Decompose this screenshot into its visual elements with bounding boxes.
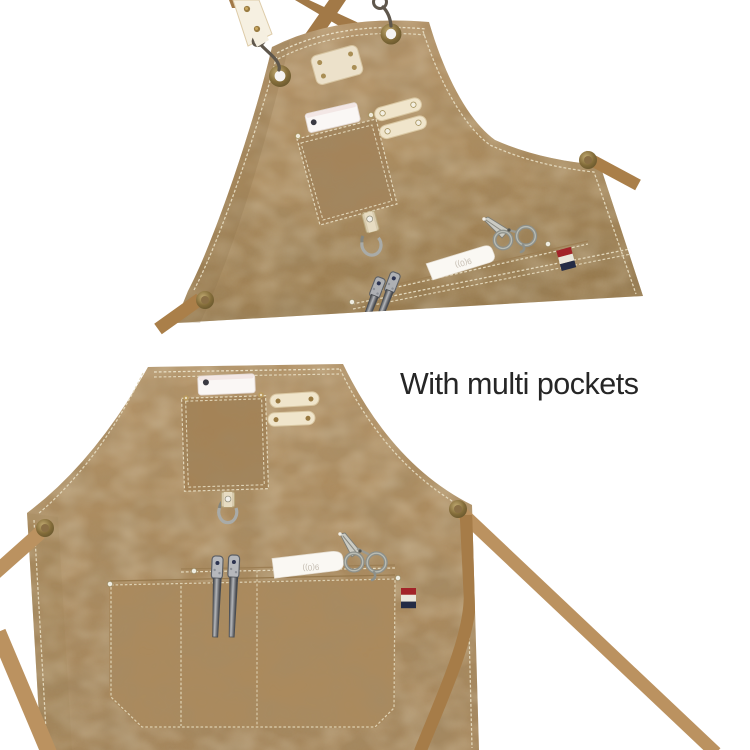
svg-text:9(0)): 9(0)) (302, 562, 320, 572)
svg-text:With multi pockets: With multi pockets (400, 367, 639, 401)
